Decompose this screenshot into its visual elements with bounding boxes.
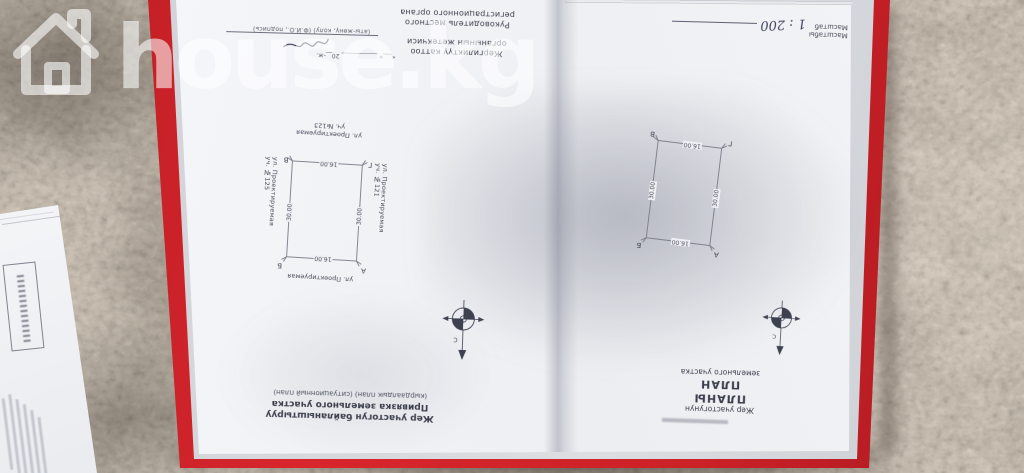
scale-value-handwritten: 1 : 200 (760, 19, 806, 29)
corner-label-tr: Б (277, 261, 282, 269)
scale-underline (672, 21, 757, 24)
corner-label-tr: Б (636, 241, 642, 250)
corner-label-tl: А (713, 250, 719, 259)
compass-north-label: С (772, 333, 776, 339)
plot-plan-situational: ул. Проектируемая А Б В Г 16.00 16.00 30… (257, 120, 392, 283)
dim-label-bottom: 16.00 (319, 160, 339, 168)
corner-label-br: В (650, 129, 656, 138)
compass-rose-icon: С (758, 296, 803, 358)
plan-title-block: Жер участогунун ПЛАНЫ ПЛАН земельного уч… (637, 366, 802, 416)
situational-plan-title: Жер участогун байланыштыруу Привязка зем… (252, 385, 449, 423)
dim-label-right: 30.00 (286, 202, 294, 222)
corner-label-br: В (283, 155, 288, 163)
corner-label-bl: Г (368, 161, 373, 169)
signature-squiggle-icon (282, 34, 330, 53)
scale-note: Масштабы Масштаб 1 : 200 (672, 5, 849, 40)
corner-label-tl: А (361, 266, 366, 274)
compass-rose-icon: С (440, 295, 486, 362)
scale-label-russian: Масштаб (809, 22, 848, 31)
signature-zone: «___» ____________ 20__-ж. (аты-жөнү, ко… (196, 19, 401, 62)
plot-plan-main: А Б В Г 16.00 16.00 30.00 30.00 (621, 124, 748, 263)
approval-block: Жергиликтүү каттоо органынын жетекчиси Р… (397, 6, 516, 58)
dim-label-top: 16.00 (313, 254, 333, 262)
scale-label-kyrgyz: Масштабы (809, 30, 848, 39)
photo-of-land-plan-document: Жергиликтүү каттоо органынын жетекчиси Р… (0, 0, 1024, 473)
dim-label-left: 30.00 (356, 207, 364, 227)
envelope-stamp-text-smudge (16, 272, 30, 342)
compass-north-label: С (453, 336, 457, 343)
